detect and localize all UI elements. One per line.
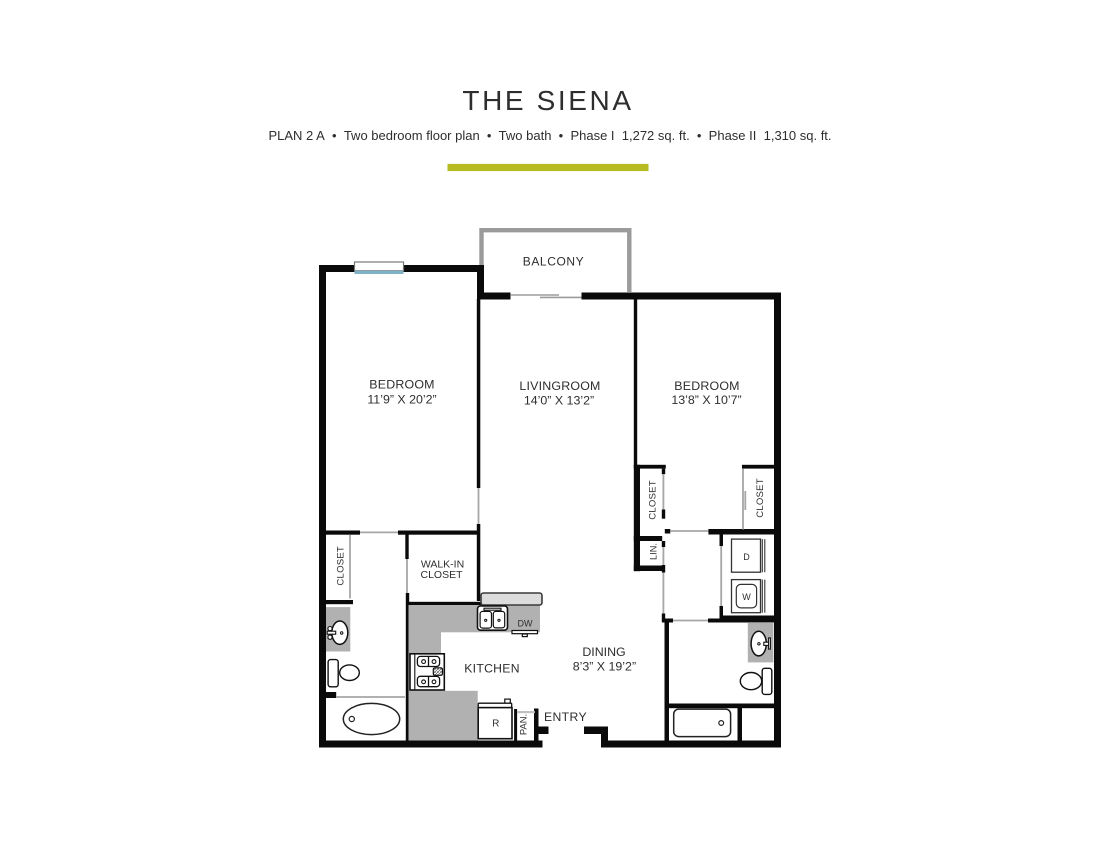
svg-text:14’0” X 13’2”: 14’0” X 13’2”: [524, 394, 594, 408]
svg-text:D: D: [743, 552, 750, 562]
svg-text:DINING: DINING: [582, 645, 625, 659]
svg-text:13’8” X 10’7”: 13’8” X 10’7”: [671, 393, 741, 407]
svg-text:BEDROOM: BEDROOM: [369, 378, 434, 392]
svg-text:CLOSET: CLOSET: [420, 569, 463, 581]
svg-text:CLOSET: CLOSET: [647, 480, 658, 520]
svg-text:ENTRY: ENTRY: [544, 710, 587, 724]
svg-text:PAN.: PAN.: [518, 714, 529, 735]
svg-text:DW: DW: [518, 618, 533, 628]
svg-text:LIVINGROOM: LIVINGROOM: [519, 379, 600, 393]
svg-text:BEDROOM: BEDROOM: [674, 379, 739, 393]
svg-text:THE SIENA: THE SIENA: [462, 85, 633, 116]
svg-text:8’3” X 19’2”: 8’3” X 19’2”: [573, 659, 636, 673]
svg-text:LIN.: LIN.: [648, 543, 658, 560]
svg-text:KITCHEN: KITCHEN: [464, 662, 520, 676]
svg-text:11’9” X 20’2”: 11’9” X 20’2”: [367, 393, 436, 407]
svg-text:CLOSET: CLOSET: [335, 546, 346, 586]
svg-text:W: W: [742, 592, 751, 602]
svg-text:CLOSET: CLOSET: [755, 478, 766, 518]
svg-text:BALCONY: BALCONY: [523, 254, 585, 268]
svg-text:R: R: [492, 719, 499, 730]
svg-text:PLAN 2 A • Two bedroom floor: PLAN 2 A • Two bedroom floor plan • Two …: [268, 128, 831, 143]
